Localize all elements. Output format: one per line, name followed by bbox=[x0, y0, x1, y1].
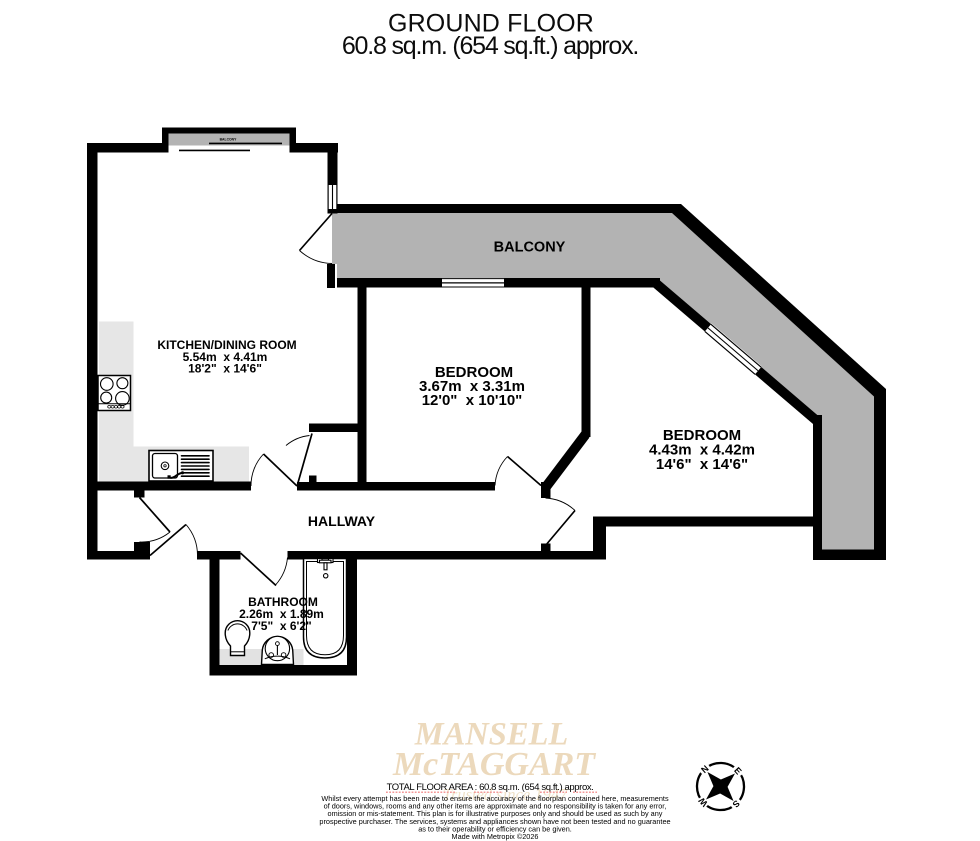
svg-text:HALLWAY: HALLWAY bbox=[308, 513, 376, 529]
svg-text:14'6" x 14'6": 14'6" x 14'6" bbox=[656, 456, 748, 473]
svg-text:McTAGGART: McTAGGART bbox=[392, 746, 596, 783]
svg-text:60.8 sq.m. (654 sq.ft.) approx: 60.8 sq.m. (654 sq.ft.) approx. bbox=[342, 32, 638, 60]
svg-text:12'0" x 10'10": 12'0" x 10'10" bbox=[422, 392, 523, 409]
svg-text:TOTAL FLOOR AREA : 60.8 sq.m.: TOTAL FLOOR AREA : 60.8 sq.m. (654 sq.ft… bbox=[387, 782, 594, 793]
svg-text:BALCONY: BALCONY bbox=[220, 137, 238, 141]
svg-text:18'2" x 14'6": 18'2" x 14'6" bbox=[188, 362, 262, 376]
svg-text:BALCONY: BALCONY bbox=[494, 239, 566, 255]
svg-text:Made with Metropix ©2026: Made with Metropix ©2026 bbox=[452, 832, 539, 841]
svg-text:7'5" x 6'2": 7'5" x 6'2" bbox=[251, 619, 311, 633]
